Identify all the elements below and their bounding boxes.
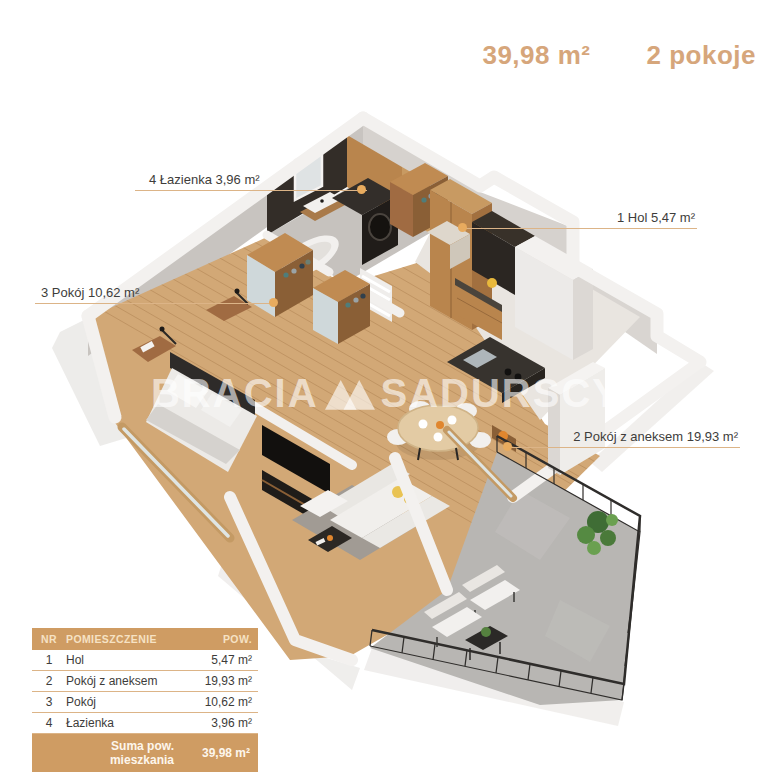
leader-dot (503, 442, 512, 451)
row-nr: 3 (38, 695, 60, 709)
row-name: Pokój z aneksem (60, 674, 190, 688)
leader-dot (357, 185, 366, 194)
table-header-area: POW. (190, 633, 252, 645)
area-table: NR POMIESZCZENIE POW. 1 Hol 5,47 m² 2 Po… (32, 628, 258, 772)
row-area: 10,62 m² (190, 695, 252, 709)
centerpiece (436, 421, 444, 429)
brochure-page: 39,98 m² 2 pokoje (0, 0, 772, 783)
table-row: 4 Łazienka 3,96 m² (32, 713, 258, 734)
row-nr: 4 (38, 716, 60, 730)
row-name: Łazienka (60, 716, 190, 730)
table-row: 3 Pokój 10,62 m² (32, 692, 258, 713)
label-bathroom: 4 Łazienka 3,96 m² (135, 160, 367, 191)
leader-dot (269, 298, 278, 307)
label-hol: 1 Hol 5,47 m² (463, 198, 697, 229)
table-header-nr: NR (38, 633, 60, 645)
label-bathroom-text: 4 Łazienka 3,96 m² (149, 172, 260, 187)
row-area: 19,93 m² (190, 674, 252, 688)
label-room: 3 Pokój 10,62 m² (35, 273, 274, 304)
label-room-annex: 2 Pokój z aneksem 19,93 m² (508, 417, 740, 448)
row-name: Pokój (60, 695, 190, 709)
row-name: Hol (60, 653, 190, 667)
table-header-name: POMIESZCZENIE (60, 633, 190, 645)
table-row: 2 Pokój z aneksem 19,93 m² (32, 671, 258, 692)
leader-dot (458, 223, 467, 232)
label-room-text: 3 Pokój 10,62 m² (41, 285, 139, 300)
table-header-row: NR POMIESZCZENIE POW. (32, 628, 258, 650)
row-area: 5,47 m² (190, 653, 252, 667)
table-footer-label: Suma pow. mieszkania (40, 739, 188, 767)
row-nr: 1 (38, 653, 60, 667)
row-nr: 2 (38, 674, 60, 688)
table-row: 1 Hol 5,47 m² (32, 650, 258, 671)
table-footer-value: 39,98 m² (188, 746, 250, 760)
label-hol-text: 1 Hol 5,47 m² (617, 210, 695, 225)
table-footer-row: Suma pow. mieszkania 39,98 m² (32, 734, 258, 772)
flower-bowl (487, 278, 497, 288)
row-area: 3,96 m² (190, 716, 252, 730)
label-room-annex-text: 2 Pokój z aneksem 19,93 m² (573, 429, 738, 444)
